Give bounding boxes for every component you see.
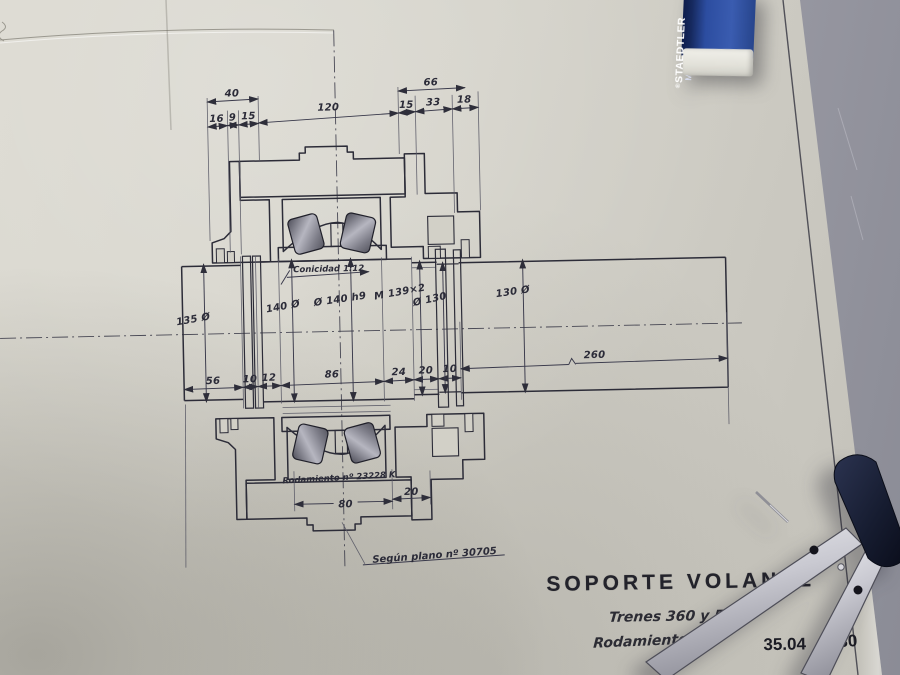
photo-scene: 40 66 16 9 15 120 15 33 18 135 Ø 140 Ø Ø… <box>0 0 900 675</box>
compass-rivet-lower <box>854 586 863 595</box>
compass-rivet-upper <box>810 546 819 555</box>
drafting-compass <box>0 0 900 675</box>
compass-needle-glint <box>770 505 788 522</box>
compass-hinge-screw <box>838 564 844 570</box>
